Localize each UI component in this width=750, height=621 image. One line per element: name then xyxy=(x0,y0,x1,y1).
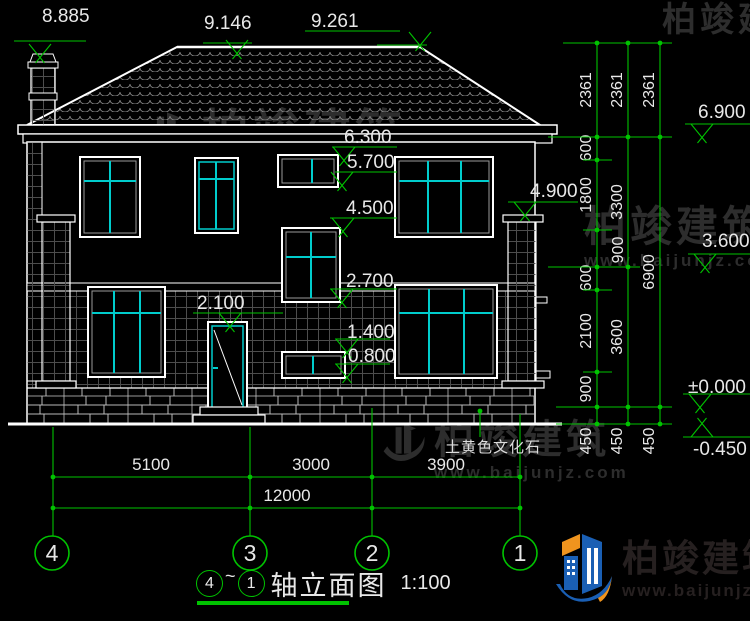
elevation-value: 6.900 xyxy=(698,102,746,123)
dimension-value: 12000 xyxy=(263,486,310,505)
dimension-value: 3600 xyxy=(609,319,626,355)
dimension-value: 900 xyxy=(610,237,627,264)
cad-elevation-drawing: 柏竣建筑 www.baijunjz.com 柏竣建筑 www.baijunjz.… xyxy=(0,0,750,621)
range-tilde: ~ xyxy=(225,566,236,587)
material-leader xyxy=(478,409,483,437)
dimension-value: 3000 xyxy=(292,455,330,474)
elevation-value: 4.500 xyxy=(346,198,394,219)
axis-bubble-to: 1 xyxy=(238,570,265,597)
dimension-value: 3300 xyxy=(609,184,626,220)
dimension-value: 3900 xyxy=(427,455,465,474)
elevation-value: 9.261 xyxy=(311,11,359,32)
axis-number: 3 xyxy=(244,540,257,566)
elevation-value: 9.146 xyxy=(204,13,252,34)
axis-bubble-from: 4 xyxy=(196,570,223,597)
dimension-value: 900 xyxy=(578,376,595,403)
elevation-value: 2.700 xyxy=(346,271,394,292)
elevation-value: 3.600 xyxy=(702,231,750,252)
dimension-value: 2361 xyxy=(609,72,626,108)
brand-name: 柏竣建筑 xyxy=(622,540,750,577)
dimension-value: 2100 xyxy=(578,313,595,349)
vertical-dimension-chains: 2361600180090060021009004502361330036004… xyxy=(548,41,672,455)
elevation-value: 0.800 xyxy=(348,346,396,367)
axis-number: 4 xyxy=(46,540,59,566)
elevation-value: 8.885 xyxy=(42,6,90,27)
material-label: 土黄色文化石 xyxy=(445,436,541,457)
dimension-value: 6900 xyxy=(641,254,658,290)
axis-number: 1 xyxy=(514,540,527,566)
title-underline xyxy=(197,601,349,605)
horizontal-dimension-chains: 51003000390012000 xyxy=(51,408,523,536)
dimension-value: 450 xyxy=(578,428,595,455)
dimension-value: 450 xyxy=(641,428,658,455)
elevation-value: 5.700 xyxy=(347,152,395,173)
dimension-value: 450 xyxy=(609,428,626,455)
dimension-value: 2361 xyxy=(641,72,658,108)
elevation-markers: 8.8859.1469.2616.3005.7004.5002.7002.100… xyxy=(14,6,750,460)
dimension-value: 5100 xyxy=(132,455,170,474)
dimension-value: 2361 xyxy=(578,72,595,108)
elevation-value: ±0.000 xyxy=(688,377,746,398)
elevation-value: 4.900 xyxy=(530,181,578,202)
brand-logo-icon xyxy=(554,528,614,610)
drawing-scale: 1:100 xyxy=(401,572,451,595)
dimension-value: 1800 xyxy=(578,177,595,213)
dimension-value: 600 xyxy=(578,135,595,162)
axis-number: 2 xyxy=(366,540,379,566)
elevation-value: 6.300 xyxy=(344,127,392,148)
drawing-title: 4 ~ 1 轴立面图 1:100 xyxy=(196,564,451,603)
drawing-title-text: 轴立面图 xyxy=(271,564,387,603)
brand-logo: 柏竣建筑 www.baijunjz.com xyxy=(554,528,750,610)
dimension-value: 600 xyxy=(578,265,595,292)
elevation-value: 1.400 xyxy=(347,322,395,343)
elevation-value: 2.100 xyxy=(197,293,245,314)
elevation-value: -0.450 xyxy=(693,439,747,460)
brand-url: www.baijunjz.com xyxy=(622,582,750,599)
